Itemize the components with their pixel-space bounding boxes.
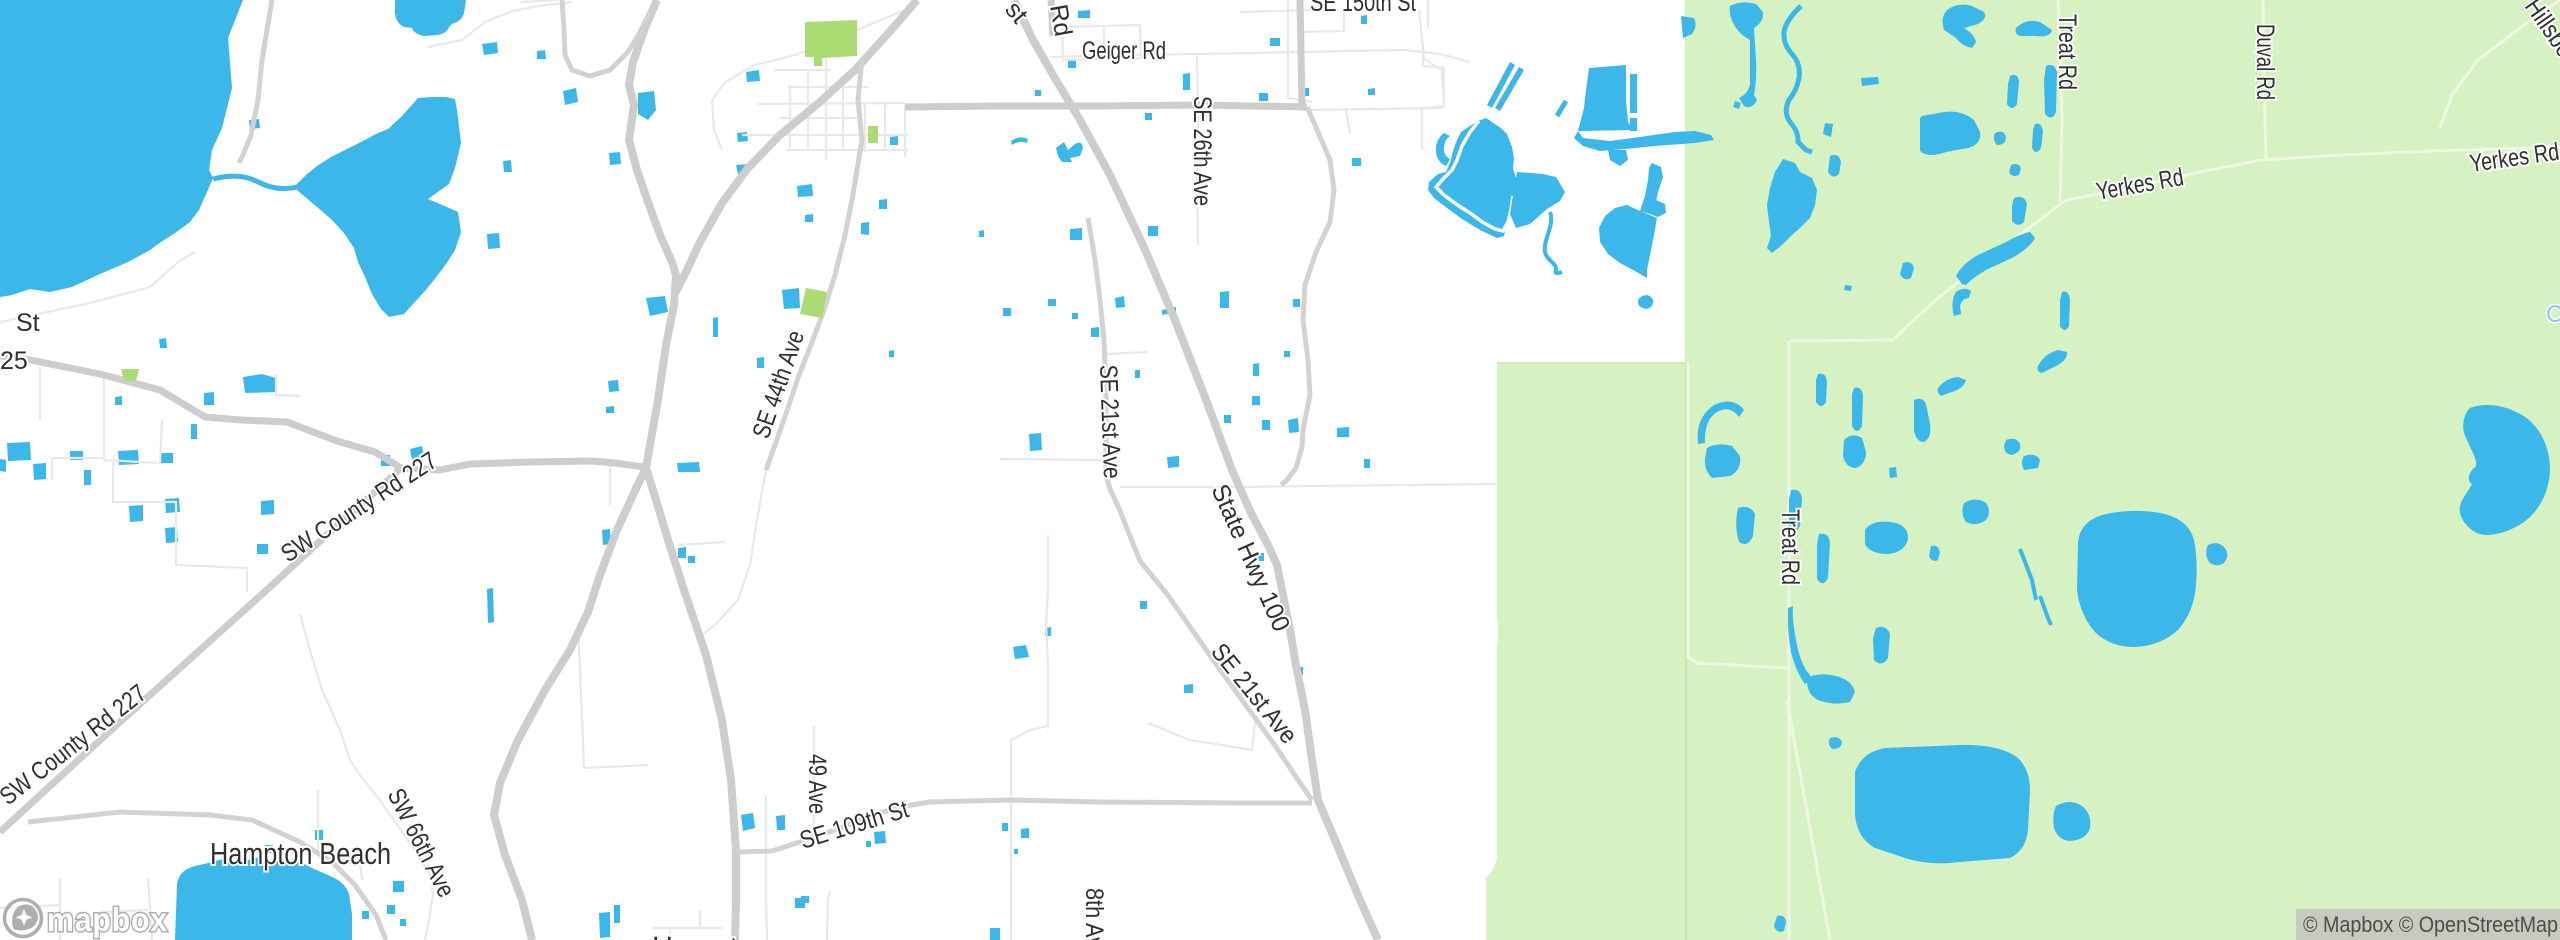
svg-text:© Mapbox © OpenStreetMap: © Mapbox © OpenStreetMap: [2303, 912, 2558, 937]
svg-text:C: C: [2546, 301, 2560, 328]
svg-text:Rd: Rd: [1044, 2, 1077, 38]
svg-text:49 Ave: 49 Ave: [803, 754, 831, 814]
svg-text:Treat Rd: Treat Rd: [1776, 509, 1804, 585]
svg-text:Duval Rd: Duval Rd: [2251, 24, 2279, 100]
svg-text:SE 21st Ave: SE 21st Ave: [1094, 364, 1126, 479]
svg-text:mapbox: mapbox: [47, 901, 168, 938]
svg-text:St: St: [16, 309, 40, 337]
svg-text:Hampton Beach: Hampton Beach: [210, 836, 391, 871]
svg-text:25: 25: [0, 347, 28, 375]
svg-text:8th Ave: 8th Ave: [1080, 888, 1108, 940]
svg-text:Geiger Rd: Geiger Rd: [1082, 37, 1166, 65]
svg-text:SE 150th St: SE 150th St: [1310, 0, 1416, 17]
svg-text:Hampton: Hampton: [652, 929, 770, 940]
svg-text:SE 26th Ave: SE 26th Ave: [1188, 96, 1216, 206]
svg-text:Treat Rd: Treat Rd: [2053, 14, 2081, 90]
